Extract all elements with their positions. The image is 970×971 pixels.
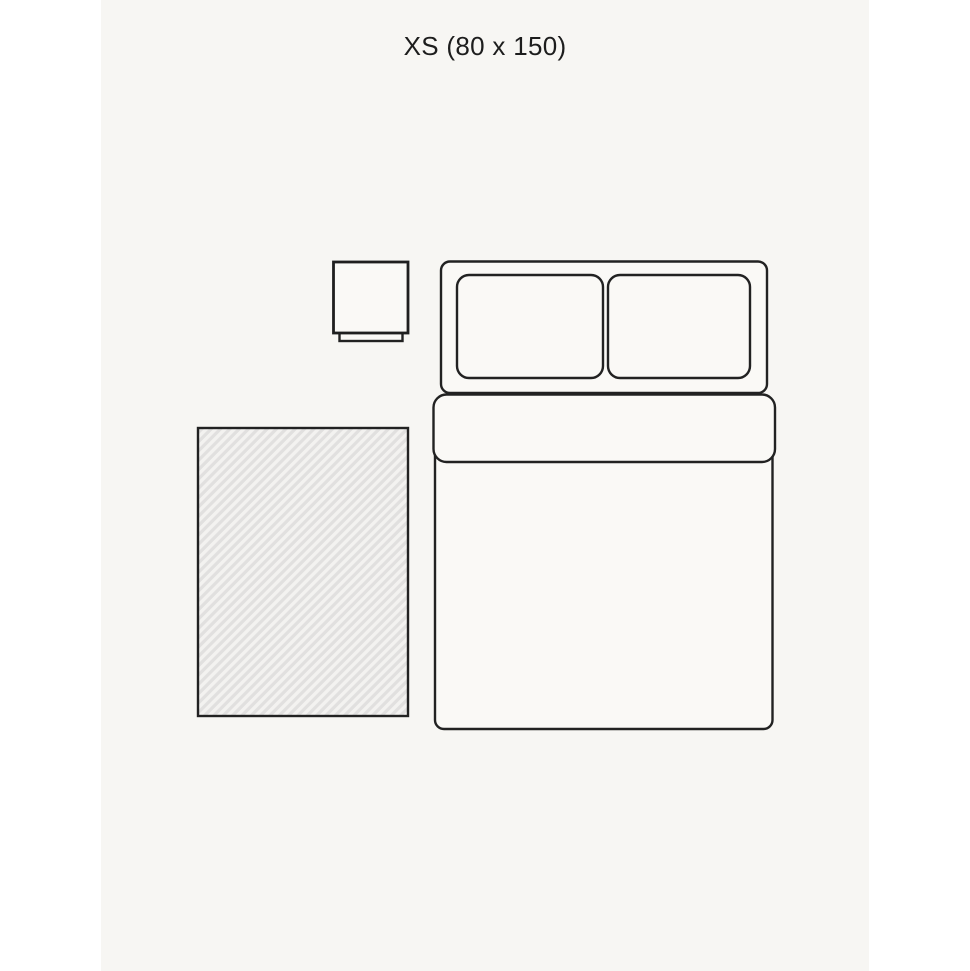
nightstand — [334, 262, 409, 341]
pillow-right — [608, 275, 750, 378]
bed — [434, 262, 776, 730]
room-layout-diagram — [101, 0, 869, 971]
size-guide-image: XS (80 x 150) — [0, 0, 970, 971]
duvet-fold — [434, 395, 776, 463]
nightstand-top — [334, 262, 409, 333]
size-guide-panel: XS (80 x 150) — [101, 0, 869, 971]
pillow-left — [457, 275, 603, 378]
rug — [198, 428, 408, 716]
size-title: XS (80 x 150) — [101, 33, 869, 59]
rug-shape — [198, 428, 408, 716]
